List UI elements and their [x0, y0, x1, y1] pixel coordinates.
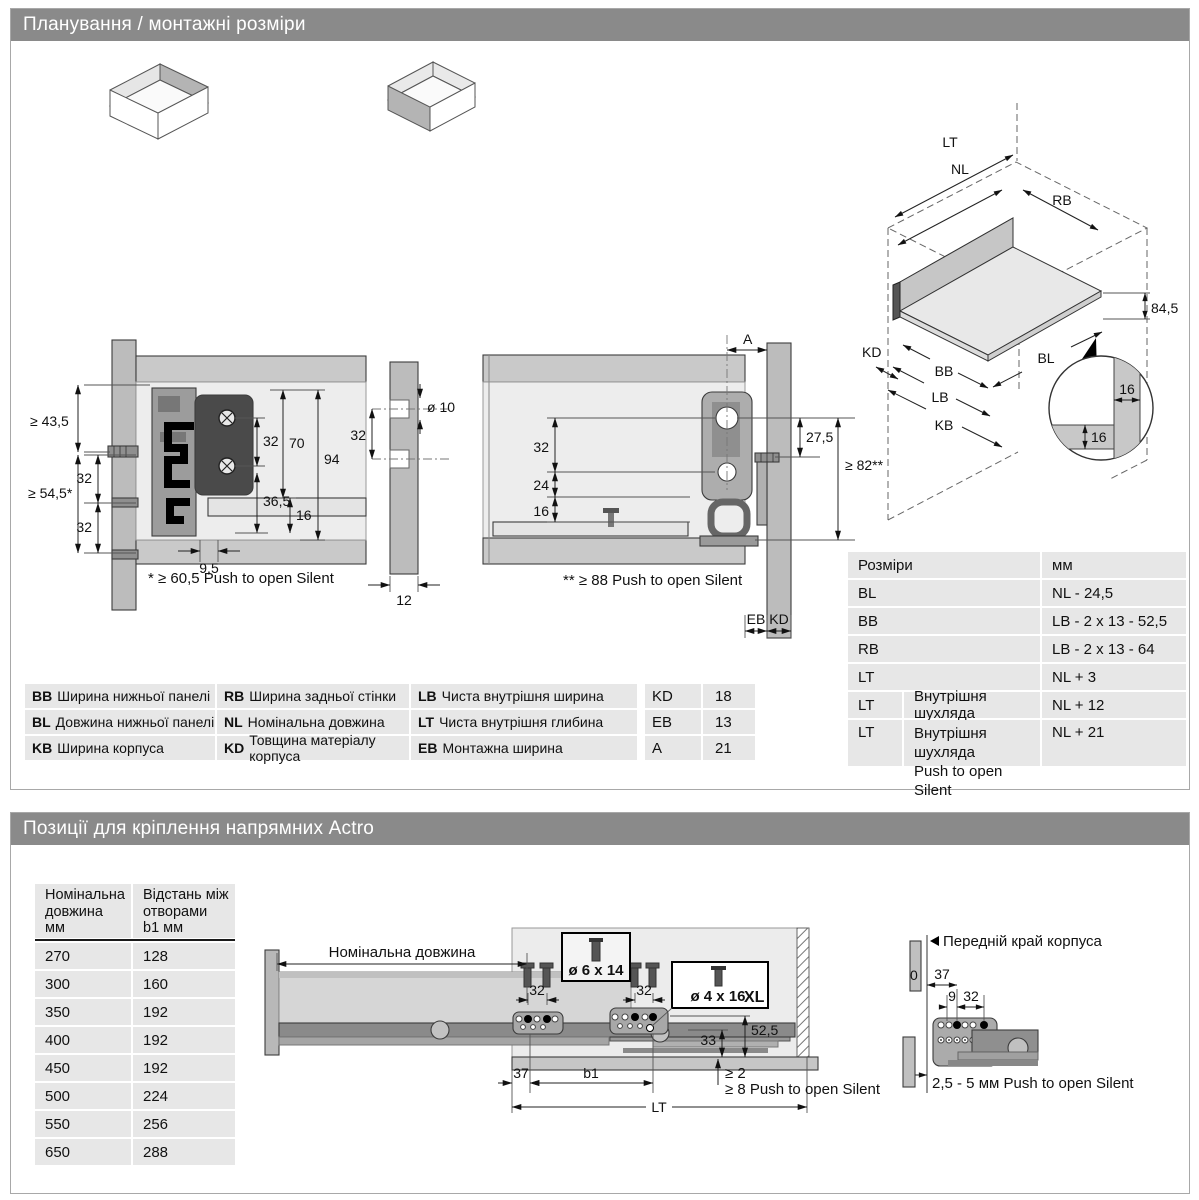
dim-33: 33 — [700, 1032, 716, 1048]
dim-27-5: 27,5 — [806, 429, 833, 445]
dim-EB: EB — [747, 611, 766, 627]
gap-2: ≥ 2 — [725, 1065, 746, 1082]
code-cell: LT — [848, 692, 902, 718]
legend-cell: RBШирина задньої стінки — [217, 684, 409, 708]
b1-cell: 256 — [133, 1111, 235, 1137]
dim-32-rear: 32 — [636, 982, 652, 998]
legend-cell: BLДовжина нижньої панелі — [25, 710, 215, 734]
b1-cell: 128 — [133, 943, 235, 969]
dim-54-5: ≥ 54,5* — [28, 485, 73, 501]
b1-cell: 288 — [133, 1139, 235, 1165]
code-cell: LT — [848, 720, 902, 766]
note-60-5: * ≥ 60,5 Push to open Silent — [148, 570, 335, 587]
length-cell: 400 — [35, 1027, 131, 1053]
screw-spec-2-xl: XL — [744, 989, 765, 1006]
desc-cell: Внутрішня шухляда Push to open Silent — [904, 720, 1040, 766]
length-cell: 350 — [35, 999, 131, 1025]
desc-cell: Внутрішня шухляда — [904, 692, 1040, 718]
dim-16: 16 — [296, 507, 312, 523]
header-rule — [35, 939, 235, 941]
dim-32-mid: 32 — [533, 439, 549, 455]
col-header: Відстань між отворами b1 мм — [133, 884, 235, 938]
dim-hole-10: ø 10 — [427, 399, 455, 415]
b1-cell: 224 — [133, 1083, 235, 1109]
length-cell: 450 — [35, 1055, 131, 1081]
front-edge-dimensions: Передній край корпуса 0 37 9 32 2,5 - 5 … — [910, 933, 1134, 1092]
dim-A: A — [743, 331, 753, 347]
dim-16-horizontal: 16 — [1119, 381, 1135, 397]
b1-cell: 192 — [133, 1027, 235, 1053]
dim-43-5: ≥ 43,5 — [30, 413, 69, 429]
code-cell: BL — [848, 580, 1040, 606]
dim-32-front: 32 — [529, 982, 545, 998]
dim-9: 9 — [948, 988, 956, 1004]
dim-KD-iso: KD — [862, 344, 881, 360]
front-edge-label: Передній край корпуса — [943, 933, 1103, 950]
note-88: ** ≥ 88 Push to open Silent — [563, 572, 743, 589]
dim-32-screws: 32 — [263, 433, 279, 449]
dim-BB: BB — [935, 363, 954, 379]
dim-16-vertical: 16 — [1091, 429, 1107, 445]
dim-0: 0 — [910, 967, 918, 983]
dim-94: 94 — [324, 451, 340, 467]
length-cell: 550 — [35, 1111, 131, 1137]
front-edge-parts — [903, 935, 1038, 1093]
dim-24: 24 — [533, 477, 549, 493]
legend-cell: BBШирина нижньої панелі — [25, 684, 215, 708]
length-cell: 270 — [35, 943, 131, 969]
dim-LT: LT — [942, 134, 958, 150]
length-cell: 300 — [35, 971, 131, 997]
value-cell: NL + 3 — [1042, 664, 1186, 690]
dim-b1: b1 — [583, 1065, 599, 1081]
section-planning-title: Планування / монтажні розміри — [11, 9, 1189, 41]
cross-section-front-drawing: ≥ 43,5 ≥ 54,5* 32 32 32 70 94 36,5 16 9,… — [20, 330, 475, 620]
dim-LT-bottom: LT — [651, 1099, 667, 1115]
value-cell: LB - 2 x 13 - 52,5 — [1042, 608, 1186, 634]
dim-32-right: 32 — [963, 988, 979, 1004]
dim-12: 12 — [396, 592, 412, 608]
value-cell: 21 — [703, 736, 755, 760]
dim-84-5: 84,5 — [1151, 300, 1178, 316]
screw-spec-2: ø 4 x 16 — [690, 988, 745, 1005]
dim-52-5: 52,5 — [751, 1022, 778, 1038]
isometric-drawer-drawing: LT NL RB 84,5 KD BB LB KB BL — [850, 95, 1199, 475]
dim-RB: RB — [1052, 192, 1071, 208]
dim-KB: KB — [935, 417, 954, 433]
header-cell: мм — [1042, 552, 1186, 578]
dim-32-left-1: 32 — [76, 470, 92, 486]
drawer-icon-front-shaded — [380, 52, 485, 142]
dim-37-right: 37 — [934, 966, 950, 982]
code-cell: KD — [645, 684, 701, 708]
code-cell: BB — [848, 608, 1040, 634]
value-cell: 18 — [703, 684, 755, 708]
legend-cell: NLНомінальна довжина — [217, 710, 409, 734]
code-cell: A — [645, 736, 701, 760]
dim-70: 70 — [289, 435, 305, 451]
code-cell: EB — [645, 710, 701, 734]
value-cell: NL + 21 — [1042, 720, 1186, 766]
length-cell: 500 — [35, 1083, 131, 1109]
front-edge-drawing: Передній край корпуса 0 37 9 32 2,5 - 5 … — [898, 925, 1198, 1105]
dim-BL: BL — [1037, 350, 1054, 366]
legend-cell: KDТовщина матеріалу корпуса — [217, 736, 409, 760]
dim-nominal-length: Номінальна довжина — [329, 944, 476, 961]
value-cell: NL - 24,5 — [1042, 580, 1186, 606]
b1-cell: 192 — [133, 999, 235, 1025]
legend-cell: LBЧиста внутрішня ширина — [411, 684, 637, 708]
gap-8-push: ≥ 8 Push to open Silent — [725, 1081, 881, 1098]
drawer-isometric — [893, 218, 1101, 361]
dim-37: 37 — [513, 1065, 529, 1081]
kd-eb-a-table: KD 18 EB 13 A 21 — [645, 684, 755, 762]
value-cell: NL + 12 — [1042, 692, 1186, 718]
dim-32-panel: 32 — [350, 427, 366, 443]
legend-cell: KBШирина корпуса — [25, 736, 215, 760]
b1-cell: 160 — [133, 971, 235, 997]
runner-mounting-drawing: Номінальна довжина 32 32 ø 6 x 14 ø 4 x … — [258, 893, 898, 1121]
dim-32-left-2: 32 — [76, 519, 92, 535]
section-actro-title: Позиції для кріплення напрямних Actro — [11, 813, 1189, 845]
value-cell: LB - 2 x 13 - 64 — [1042, 636, 1186, 662]
catalog-page: Планування / монтажні розміри — [0, 0, 1199, 1200]
corner-detail-circle: 16 16 — [1046, 338, 1153, 461]
drawer-side-view — [483, 335, 791, 638]
b1-cell: 192 — [133, 1055, 235, 1081]
dim-36-5: 36,5 — [263, 493, 290, 509]
col-header: Номінальна довжина мм — [35, 884, 131, 938]
legend-cell: EBМонтажна ширина — [411, 736, 637, 760]
screw-spec-1: ø 6 x 14 — [568, 962, 624, 979]
legend-cell: LTЧиста внутрішня глибина — [411, 710, 637, 734]
value-cell: 13 — [703, 710, 755, 734]
dim-LB: LB — [931, 389, 948, 405]
dim-16-mid: 16 — [533, 503, 549, 519]
dimensions-formula-table: Розміри мм BL NL - 24,5 BB LB - 2 x 13 -… — [848, 552, 1186, 768]
cross-section-side-drawing: A 32 24 16 27,5 ≥ 82** EB KD ** ≥ 88 Pus… — [475, 330, 895, 650]
drawer-icon-back-shaded — [100, 52, 220, 147]
dim-NL: NL — [951, 161, 969, 177]
header-cell: Розміри — [848, 552, 1040, 578]
nominal-length-table: Номінальна довжина мм Відстань між отвор… — [35, 884, 235, 1167]
code-cell: LT — [848, 664, 1040, 690]
gap-note: 2,5 - 5 мм Push to open Silent — [932, 1075, 1134, 1092]
legend-table: BBШирина нижньої панелі RBШирина задньої… — [25, 684, 639, 762]
length-cell: 650 — [35, 1139, 131, 1165]
code-cell: RB — [848, 636, 1040, 662]
dim-KD: KD — [769, 611, 788, 627]
screw-spec-box-6x14: ø 6 x 14 — [562, 933, 630, 981]
